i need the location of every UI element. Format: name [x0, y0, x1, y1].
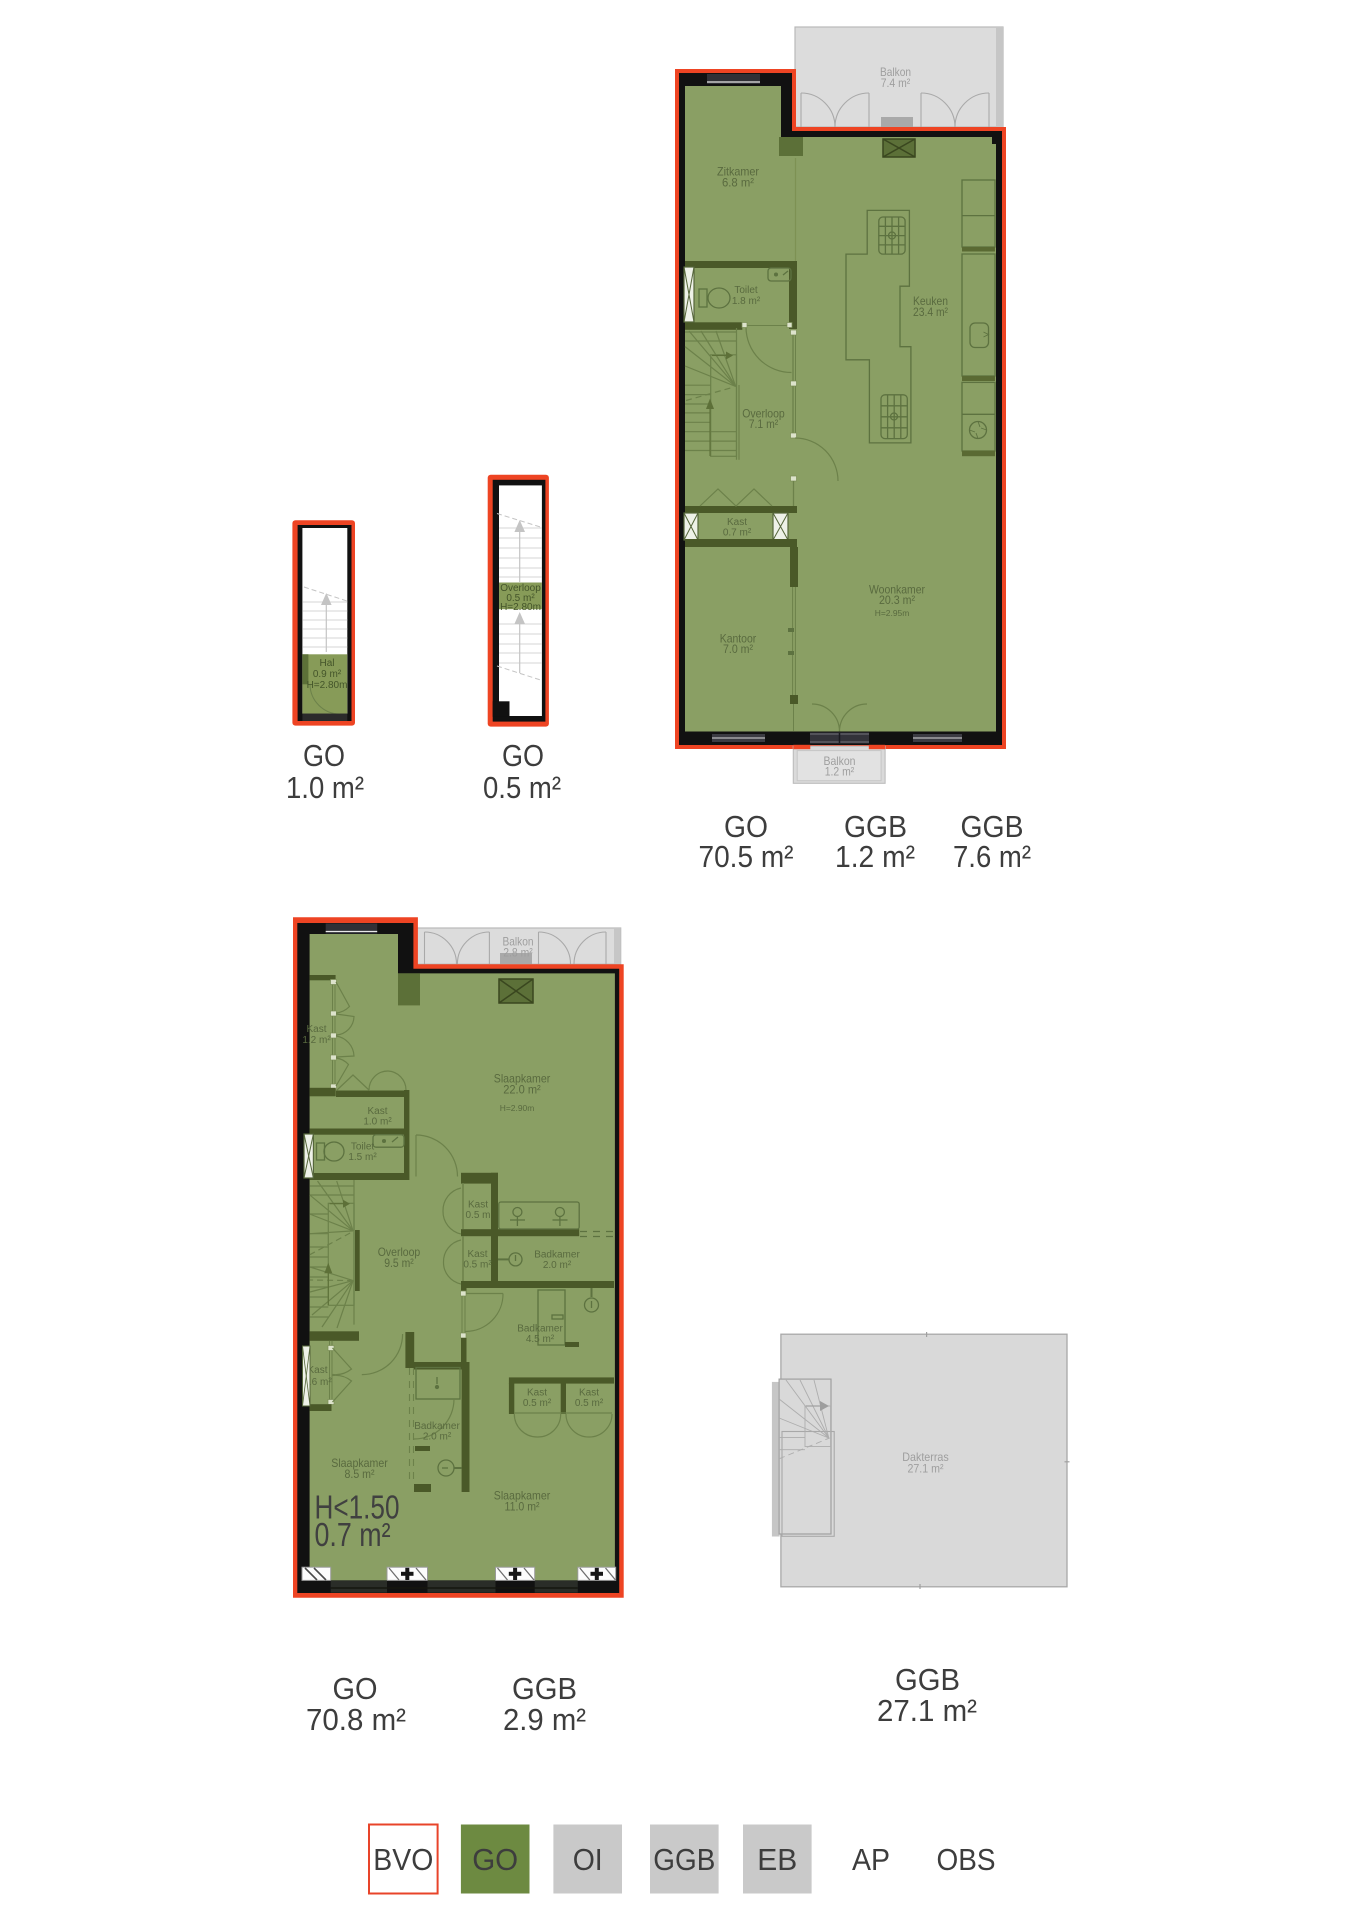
svg-text:Hal: Hal — [319, 658, 334, 669]
svg-text:1.2 m²: 1.2 m² — [835, 839, 915, 874]
svg-text:27.1 m²: 27.1 m² — [877, 1693, 977, 1728]
svg-text:7.0 m²: 7.0 m² — [723, 642, 753, 656]
svg-text:0.5 m²: 0.5 m² — [463, 1260, 492, 1271]
svg-text:0.9 m²: 0.9 m² — [313, 669, 342, 680]
svg-text:Kast: Kast — [468, 1200, 488, 1211]
svg-text:2.8 m²: 2.8 m² — [503, 946, 533, 960]
svg-text:GGB: GGB — [512, 1671, 577, 1706]
svg-text:Toilet: Toilet — [351, 1142, 375, 1153]
svg-text:7.6 m²: 7.6 m² — [953, 839, 1031, 874]
svg-text:Kast: Kast — [467, 1249, 487, 1260]
svg-text:27.1 m²: 27.1 m² — [908, 1462, 944, 1476]
svg-text:1.5 m²: 1.5 m² — [348, 1152, 377, 1163]
svg-text:BVO: BVO — [373, 1842, 433, 1877]
svg-text:11.0 m²: 11.0 m² — [505, 1500, 540, 1514]
svg-text:1.0 m²: 1.0 m² — [363, 1117, 392, 1128]
svg-text:Kast: Kast — [307, 1365, 327, 1376]
svg-text:2.9 m²: 2.9 m² — [503, 1702, 586, 1737]
svg-text:Badkamer: Badkamer — [534, 1250, 580, 1261]
svg-text:2.0 m²: 2.0 m² — [423, 1432, 452, 1443]
svg-text:4.5 m²: 4.5 m² — [526, 1334, 555, 1345]
svg-text:22.0 m²: 22.0 m² — [503, 1083, 541, 1097]
svg-text:GO: GO — [303, 738, 345, 773]
svg-text:1.0 m²: 1.0 m² — [286, 770, 364, 805]
svg-text:Kast: Kast — [367, 1106, 387, 1117]
svg-text:2.0 m²: 2.0 m² — [543, 1260, 572, 1271]
svg-text:9.5 m²: 9.5 m² — [384, 1256, 414, 1270]
svg-text:0.5 m: 0.5 m — [465, 1210, 490, 1221]
svg-text:OBS: OBS — [937, 1842, 996, 1877]
svg-text:GO: GO — [472, 1842, 518, 1877]
svg-text:7.4 m²: 7.4 m² — [881, 76, 911, 90]
svg-text:0.7 m²: 0.7 m² — [723, 528, 752, 539]
svg-text:1.8 m²: 1.8 m² — [732, 296, 761, 307]
svg-text:H=2.80m: H=2.80m — [307, 680, 348, 691]
svg-text:Kast: Kast — [306, 1024, 326, 1035]
svg-text:7.1 m²: 7.1 m² — [749, 417, 779, 431]
svg-text:70.8 m²: 70.8 m² — [306, 1702, 406, 1737]
svg-text:GGB: GGB — [895, 1662, 960, 1697]
svg-text:H=2.90m: H=2.90m — [500, 1103, 535, 1113]
svg-text:AP: AP — [852, 1842, 890, 1877]
svg-text:1.2 m²: 1.2 m² — [302, 1035, 331, 1046]
svg-text:GO: GO — [333, 1671, 378, 1706]
svg-text:H=2.80m: H=2.80m — [500, 602, 541, 613]
svg-text:23.4 m²: 23.4 m² — [913, 305, 948, 319]
svg-text:Kast: Kast — [727, 517, 747, 528]
svg-text:Kast: Kast — [579, 1388, 599, 1399]
svg-text:GO: GO — [502, 738, 544, 773]
svg-text:EB: EB — [757, 1842, 797, 1877]
svg-text:Badkamer: Badkamer — [414, 1421, 460, 1432]
svg-text:OI: OI — [573, 1842, 603, 1877]
svg-text:0.5 m²: 0.5 m² — [483, 770, 561, 805]
svg-text:0.5 m²: 0.5 m² — [575, 1398, 604, 1409]
svg-text:6.8 m²: 6.8 m² — [722, 176, 754, 190]
svg-text:8.5 m²: 8.5 m² — [345, 1467, 375, 1481]
svg-text:0.7 m²: 0.7 m² — [315, 1516, 391, 1553]
svg-text:H=2.95m: H=2.95m — [875, 608, 910, 618]
svg-text:Toilet: Toilet — [734, 285, 758, 296]
svg-text:70.5 m²: 70.5 m² — [699, 839, 794, 874]
svg-text:1.2 m²: 1.2 m² — [825, 765, 855, 779]
svg-text:20.3 m²: 20.3 m² — [879, 593, 915, 607]
svg-text:GGB: GGB — [653, 1842, 715, 1877]
svg-text:Kast: Kast — [527, 1388, 547, 1399]
svg-text:0.5 m²: 0.5 m² — [523, 1398, 552, 1409]
svg-text:Badkamer: Badkamer — [517, 1324, 563, 1335]
